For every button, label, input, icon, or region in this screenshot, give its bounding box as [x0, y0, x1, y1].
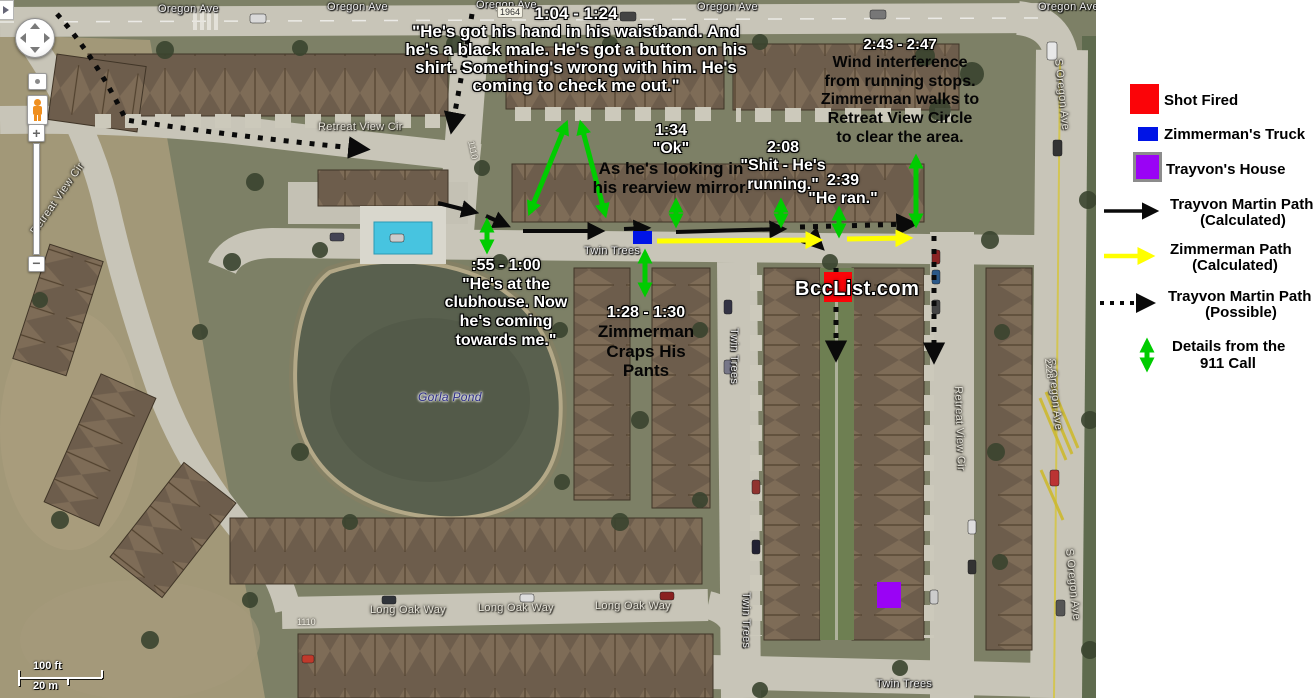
legend-item-zimmerman-path: Zimmerman Path (Calculated)	[1096, 241, 1316, 277]
street-label-oregon-ave: Oregon Ave	[327, 1, 388, 13]
pegman-icon	[34, 99, 41, 106]
annotation-1-04: 1:04 - 1:24 "He's got his hand in his wa…	[398, 5, 754, 95]
scale-bar-lines	[16, 656, 116, 692]
map-pan-control[interactable]	[15, 18, 55, 58]
trayvons-house-marker	[877, 582, 901, 608]
yellow-arrow-swatch	[1102, 246, 1174, 266]
house-number-2228: 2228	[1043, 358, 1055, 379]
legend-item-details-911: Details from the 911 Call	[1096, 330, 1316, 380]
pan-left-icon[interactable]	[20, 33, 26, 43]
street-label-long-oak-way: Long Oak Way	[478, 602, 554, 614]
street-label-long-oak-way: Long Oak Way	[595, 600, 671, 612]
zoom-control[interactable]: + −	[28, 124, 45, 272]
green-double-arrow-swatch	[1132, 330, 1162, 380]
zoom-slider[interactable]	[33, 143, 40, 255]
legend-panel: Shot Fired Zimmerman's Truck Trayvon's H…	[1096, 0, 1316, 698]
dotted-arrow-swatch	[1098, 293, 1170, 313]
street-label-retreat-view-cir: Retreat View Cir	[318, 121, 403, 133]
legend-item-zimmermans-truck: Zimmerman's Truck	[1096, 124, 1316, 144]
street-label-twin-trees: Twin Trees	[728, 328, 740, 384]
annotation-1-28: 1:28 - 1:30 Zimmerman Craps His Pants	[586, 304, 706, 381]
zimmermans-truck-marker	[633, 231, 652, 244]
zoom-out-button[interactable]: −	[28, 256, 45, 272]
zimmermans-truck-swatch	[1138, 127, 1158, 141]
street-label-twin-trees: Twin Trees	[876, 678, 932, 690]
water-label-gorla-pond: Gorla Pond	[418, 390, 482, 404]
street-label-twin-trees: Twin Trees	[740, 592, 752, 648]
street-label-oregon-ave: Oregon Ave	[1038, 1, 1096, 13]
house-number-1110: 1110	[297, 617, 316, 627]
legend-item-trayvon-path-possible: Trayvon Martin Path (Possible)	[1096, 288, 1316, 324]
recenter-dot-icon	[35, 79, 40, 84]
annotation-2-39: 2:39 "He ran."	[793, 172, 893, 209]
panel-toggle-button[interactable]	[0, 0, 14, 20]
street-label-oregon-ave: Oregon Ave	[158, 3, 219, 15]
pan-down-icon[interactable]	[30, 47, 40, 53]
satellite-map[interactable]: Oregon Ave Oregon Ave Oregon Ave Oregon …	[0, 0, 1096, 698]
watermark: BccList.com	[795, 278, 919, 301]
annotation-2-43: 2:43 - 2:47 Wind interference from runni…	[802, 36, 998, 148]
map-scale-bar: 100 ft 20 m	[16, 656, 126, 696]
pan-up-icon[interactable]	[30, 23, 40, 29]
annotation-0-55: :55 - 1:00 "He's at the clubhouse. Now h…	[426, 257, 586, 351]
pan-right-icon[interactable]	[44, 33, 50, 43]
panel-collapse-icon	[3, 6, 9, 14]
zoom-in-button[interactable]: +	[28, 124, 45, 142]
trayvons-house-swatch	[1133, 152, 1162, 182]
shot-fired-swatch	[1130, 84, 1159, 114]
screenshot: Oregon Ave Oregon Ave Oregon Ave Oregon …	[0, 0, 1316, 698]
black-arrow-swatch	[1102, 201, 1174, 221]
map-recenter-button[interactable]	[28, 73, 47, 90]
street-label-long-oak-way: Long Oak Way	[370, 604, 446, 616]
legend-item-trayvon-path-calculated: Trayvon Martin Path (Calculated)	[1096, 196, 1316, 232]
legend-item-shot-fired: Shot Fired	[1096, 84, 1316, 116]
street-view-pegman[interactable]	[27, 95, 48, 125]
legend-item-trayvons-house: Trayvon's House	[1096, 152, 1316, 184]
scale-meters-label: 20 m	[33, 680, 58, 692]
street-label-twin-trees: Twin Trees	[584, 245, 640, 257]
